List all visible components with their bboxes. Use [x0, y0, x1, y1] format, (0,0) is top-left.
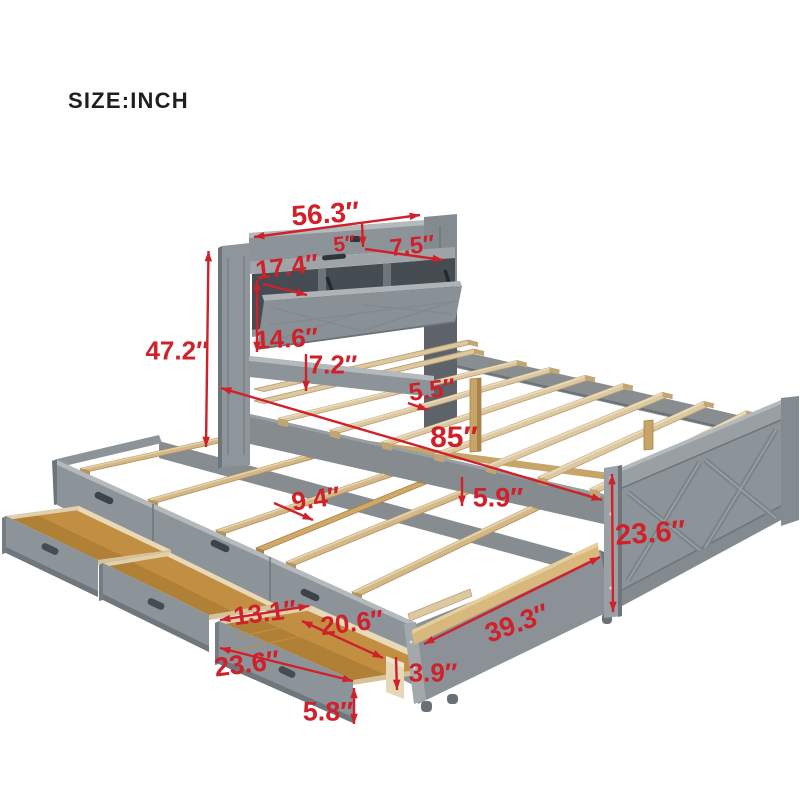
svg-text:85″: 85″ [430, 421, 478, 454]
svg-text:56.3″: 56.3″ [290, 196, 360, 232]
svg-text:5.5″: 5.5″ [407, 373, 457, 406]
svg-text:5.9″: 5.9″ [473, 483, 524, 513]
svg-text:5.8″: 5.8″ [303, 697, 354, 727]
svg-text:5″: 5″ [332, 232, 356, 257]
svg-text:23.6″: 23.6″ [614, 515, 687, 552]
svg-text:3.9″: 3.9″ [409, 657, 458, 687]
svg-text:47.2″: 47.2″ [145, 335, 208, 365]
svg-text:7.2″: 7.2″ [309, 349, 358, 379]
svg-text:9.4″: 9.4″ [290, 480, 342, 516]
svg-text:7.5″: 7.5″ [388, 230, 436, 262]
